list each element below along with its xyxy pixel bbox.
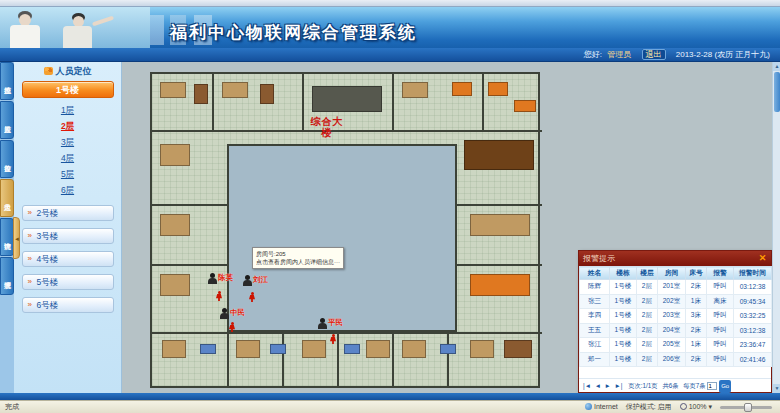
room-furniture: [236, 340, 260, 358]
building-button-5号楼[interactable]: 5号楼: [22, 274, 114, 290]
logout-button[interactable]: 退出: [642, 49, 666, 60]
cell: 2层: [637, 323, 658, 338]
nav-tab-设备监控[interactable]: 设备监控: [0, 140, 14, 178]
floor-link-5层[interactable]: 5层: [14, 166, 121, 182]
vertical-scrollbar[interactable]: ▲ ▼: [772, 62, 780, 393]
figure-head: [332, 334, 335, 337]
goto-page-input[interactable]: [707, 382, 717, 390]
app-title: 福利中心物联网综合管理系统: [170, 21, 417, 44]
floor-link-4层[interactable]: 4层: [14, 150, 121, 166]
wall: [447, 332, 449, 388]
cell: 204室: [658, 323, 686, 338]
cell: 2床: [686, 352, 707, 367]
alert-person-icon[interactable]: [249, 292, 255, 302]
wall: [457, 204, 542, 206]
photo-person1-body: [10, 25, 40, 48]
browser-top-strip: [0, 0, 780, 7]
alarm-table: 姓名楼栋楼层房间床号报警报警时间 陈辉1号楼2层201室2床呼叫03:12:38…: [579, 266, 772, 367]
cell: 206室: [658, 352, 686, 367]
cell: 03:32:25: [734, 309, 772, 324]
figure-body: [249, 295, 255, 302]
cell: 02:41:46: [734, 352, 772, 367]
nav-tab-系统监控[interactable]: 系统监控: [0, 62, 14, 100]
cell: 09:45:34: [734, 294, 772, 309]
person-body-icon: [243, 280, 252, 286]
scrollbar-thumb[interactable]: [774, 72, 780, 112]
cell: 呼叫: [707, 323, 734, 338]
internet-zone-icon: [585, 403, 592, 410]
floor-link-2层[interactable]: 2层: [14, 118, 121, 134]
wall: [457, 264, 542, 266]
wall: [337, 332, 339, 388]
person-marker-中民[interactable]: 中民: [220, 308, 229, 319]
column-header-报警: 报警: [707, 267, 734, 280]
alert-person-icon[interactable]: [229, 322, 235, 332]
cell: 2层: [637, 294, 658, 309]
person-body-icon: [220, 313, 229, 319]
wall: [152, 264, 227, 266]
panel-header: 人员定位: [14, 62, 121, 78]
app-banner: 福利中心物联网综合管理系统: [0, 7, 780, 48]
tooltip-line1: 房间号:205: [256, 250, 340, 258]
table-row[interactable]: 张江1号楼2层205室1床呼叫23:36:47: [580, 338, 772, 353]
greeting-text: 您好:: [584, 50, 602, 59]
browser-statusbar: 完成 Internet 保护模式: 启用 100% ▾: [0, 400, 780, 413]
cell: 2层: [637, 338, 658, 353]
wall: [302, 74, 304, 130]
page-info: 页次:1/1页: [628, 382, 657, 389]
wall: [152, 204, 227, 206]
person-marker-平民[interactable]: 平民: [318, 318, 327, 329]
building-button-4号楼[interactable]: 4号楼: [22, 251, 114, 267]
cell: 1号楼: [610, 352, 637, 367]
figure-head: [231, 322, 234, 325]
person-body-icon: [318, 323, 327, 329]
wall: [392, 332, 394, 388]
cell: 03:12:38: [734, 280, 772, 295]
cell: 2层: [637, 352, 658, 367]
room-furniture: [160, 274, 190, 296]
room-furniture: [160, 214, 190, 236]
person-name-label: 中民: [230, 308, 245, 318]
panel-title: 人员定位: [56, 66, 92, 76]
table-row[interactable]: 李四1号楼2层203室3床呼叫03:32:25: [580, 309, 772, 324]
username-text: 管理员: [607, 50, 631, 59]
close-icon[interactable]: ✕: [757, 253, 768, 264]
room-furniture: [366, 340, 390, 358]
user-bar: 您好: 管理员 退出 2013-2-28 (农历 正月十九): [0, 48, 780, 62]
cell: 陈辉: [580, 280, 610, 295]
cell: 1床: [686, 338, 707, 353]
wall: [152, 130, 542, 132]
table-row[interactable]: 王五1号楼2层204室2床呼叫03:12:38: [580, 323, 772, 338]
building-button-2号楼[interactable]: 2号楼: [22, 205, 114, 221]
prev-page-button[interactable]: ◄: [595, 382, 601, 389]
alert-person-icon[interactable]: [216, 291, 222, 301]
person-name-label: 陈英: [218, 273, 233, 283]
wall: [212, 74, 214, 130]
room-furniture: [222, 82, 248, 98]
room-furniture: [470, 274, 530, 296]
room-furniture: [488, 82, 508, 96]
cell: 呼叫: [707, 280, 734, 295]
protected-mode: 保护模式: 启用: [626, 401, 672, 413]
table-row[interactable]: 陈辉1号楼2层201室2床呼叫03:12:38: [580, 280, 772, 295]
room-furniture: [200, 344, 216, 354]
courtyard: [227, 144, 457, 332]
column-header-床号: 床号: [686, 267, 707, 280]
magnifier-icon: [680, 403, 687, 410]
popup-title-text: 报警提示: [583, 254, 615, 263]
room-tooltip: 房间号:205 点击查看房间内人员详细信息···: [252, 247, 344, 269]
room-furniture: [402, 340, 426, 358]
cell: 2层: [637, 280, 658, 295]
room-furniture: [440, 344, 456, 354]
cell: 03:12:38: [734, 323, 772, 338]
first-page-button[interactable]: |◄: [583, 382, 591, 389]
cell: 201室: [658, 280, 686, 295]
plan-label: 综合大楼: [310, 116, 344, 138]
vertical-nav-tabs: 系统监控真景监控设备监控人员定位统计查询系统管理: [0, 62, 14, 393]
cell: 1号楼: [610, 323, 637, 338]
wall: [227, 332, 229, 388]
floor-link-6层[interactable]: 6层: [14, 182, 121, 198]
wall: [152, 332, 542, 334]
room-furniture: [194, 84, 208, 104]
cell: 1床: [686, 294, 707, 309]
cell: 郑一: [580, 352, 610, 367]
go-button[interactable]: Go: [719, 380, 731, 393]
next-page-button[interactable]: ►: [605, 382, 611, 389]
scroll-down-arrow[interactable]: ▼: [773, 384, 780, 393]
cell: 1号楼: [610, 294, 637, 309]
column-header-报警时间: 报警时间: [734, 267, 772, 280]
column-header-楼层: 楼层: [637, 267, 658, 280]
room-furniture: [344, 344, 360, 354]
person-name-label: 平民: [328, 318, 343, 328]
floor-link-1层[interactable]: 1层: [14, 102, 121, 118]
room-furniture: [504, 340, 532, 358]
room-furniture: [312, 86, 382, 112]
per-page: 每页7条: [683, 382, 705, 389]
building-button-active[interactable]: 1号楼: [22, 81, 114, 98]
cell: 张江: [580, 338, 610, 353]
last-page-button[interactable]: ►|: [615, 382, 623, 389]
nav-tab-真景监控[interactable]: 真景监控: [0, 101, 14, 139]
status-left-text: 完成: [5, 401, 19, 413]
zoom-slider-knob[interactable]: [744, 403, 752, 412]
room-furniture: [162, 340, 186, 358]
scroll-up-arrow[interactable]: ▲: [773, 62, 780, 71]
cell: 离床: [707, 294, 734, 309]
room-furniture: [302, 340, 326, 358]
column-header-房间: 房间: [658, 267, 686, 280]
figure-head: [218, 291, 221, 294]
building-button-3号楼[interactable]: 3号楼: [22, 228, 114, 244]
nav-tab-系统管理[interactable]: 系统管理: [0, 257, 14, 295]
floor-link-3层[interactable]: 3层: [14, 134, 121, 150]
room-furniture: [452, 82, 472, 96]
photo-pointing-arm: [92, 16, 114, 27]
figure-body: [229, 325, 235, 332]
cell: 2床: [686, 323, 707, 338]
cell: 呼叫: [707, 352, 734, 367]
figure-head: [251, 292, 254, 295]
person-body-icon: [208, 278, 217, 284]
floorplan: 综合大楼: [150, 72, 540, 388]
room-furniture: [160, 144, 190, 166]
cell: 呼叫: [707, 338, 734, 353]
floor-link-list: 1层2层3层4层5层6层: [14, 102, 121, 198]
zoom-slider[interactable]: [720, 406, 772, 409]
building-button-6号楼[interactable]: 6号楼: [22, 297, 114, 313]
total-count: 共6条: [662, 382, 678, 389]
zoom-control[interactable]: 100% ▾: [680, 401, 712, 413]
cell: 203室: [658, 309, 686, 324]
cell: 王五: [580, 323, 610, 338]
nav-tab-人员定位[interactable]: 人员定位: [0, 179, 14, 217]
room-furniture: [464, 140, 534, 170]
room-furniture: [402, 82, 428, 98]
footer-bar: [0, 393, 780, 400]
cell: 2层: [637, 309, 658, 324]
photo-person2-body: [63, 26, 92, 48]
nav-tab-统计查询[interactable]: 统计查询: [0, 218, 14, 256]
column-header-楼栋: 楼栋: [610, 267, 637, 280]
sidebar-panel: 人员定位 1号楼 1层2层3层4层5层6层 2号楼3号楼4号楼5号楼6号楼 ◄: [14, 62, 122, 393]
cell: 2床: [686, 280, 707, 295]
room-furniture: [270, 344, 286, 354]
alert-person-icon[interactable]: [330, 334, 336, 344]
cell: 1号楼: [610, 338, 637, 353]
room-furniture: [470, 340, 494, 358]
app-window: 福利中心物联网综合管理系统 您好: 管理员 退出 2013-2-28 (农历 正…: [0, 0, 780, 413]
alarm-table-header-row: 姓名楼栋楼层房间床号报警报警时间: [580, 267, 772, 280]
date-text: 2013-2-28 (农历 正月十九): [676, 50, 770, 59]
room-furniture: [260, 84, 274, 104]
pagination-bar: |◄ ◄ ► ►| 页次:1/1页 共6条 每页7条 Go: [579, 378, 771, 392]
person-name-label: 刘江: [253, 275, 268, 285]
person-marker-刘江[interactable]: 刘江: [243, 275, 252, 286]
banner-photo: [0, 7, 150, 48]
cell: 李四: [580, 309, 610, 324]
room-furniture: [470, 214, 530, 236]
cell: 张三: [580, 294, 610, 309]
wall: [482, 74, 484, 130]
internet-zone: Internet: [585, 401, 618, 413]
table-row[interactable]: 张三1号楼2层202室1床离床09:45:34: [580, 294, 772, 309]
cell: 呼叫: [707, 309, 734, 324]
building-button-list: 2号楼3号楼4号楼5号楼6号楼: [14, 205, 121, 313]
table-row[interactable]: 郑一1号楼2层206室2床呼叫02:41:46: [580, 352, 772, 367]
cell: 205室: [658, 338, 686, 353]
cell: 1号楼: [610, 280, 637, 295]
figure-body: [330, 337, 336, 344]
figure-body: [216, 294, 222, 301]
people-icon: [44, 67, 53, 75]
alarm-popup: 报警提示 ✕ 姓名楼栋楼层房间床号报警报警时间 陈辉1号楼2层201室2床呼叫0…: [578, 250, 772, 393]
person-marker-陈英[interactable]: 陈英: [208, 273, 217, 284]
wall: [282, 332, 284, 388]
tooltip-line2: 点击查看房间内人员详细信息···: [256, 258, 340, 266]
cell: 202室: [658, 294, 686, 309]
room-furniture: [514, 100, 536, 112]
wall: [392, 74, 394, 130]
cell: 3床: [686, 309, 707, 324]
cell: 23:36:47: [734, 338, 772, 353]
cell: 1号楼: [610, 309, 637, 324]
popup-titlebar[interactable]: 报警提示 ✕: [579, 251, 771, 266]
sidebar-collapse-handle[interactable]: ◄: [13, 217, 20, 259]
column-header-姓名: 姓名: [580, 267, 610, 280]
room-furniture: [160, 82, 186, 98]
